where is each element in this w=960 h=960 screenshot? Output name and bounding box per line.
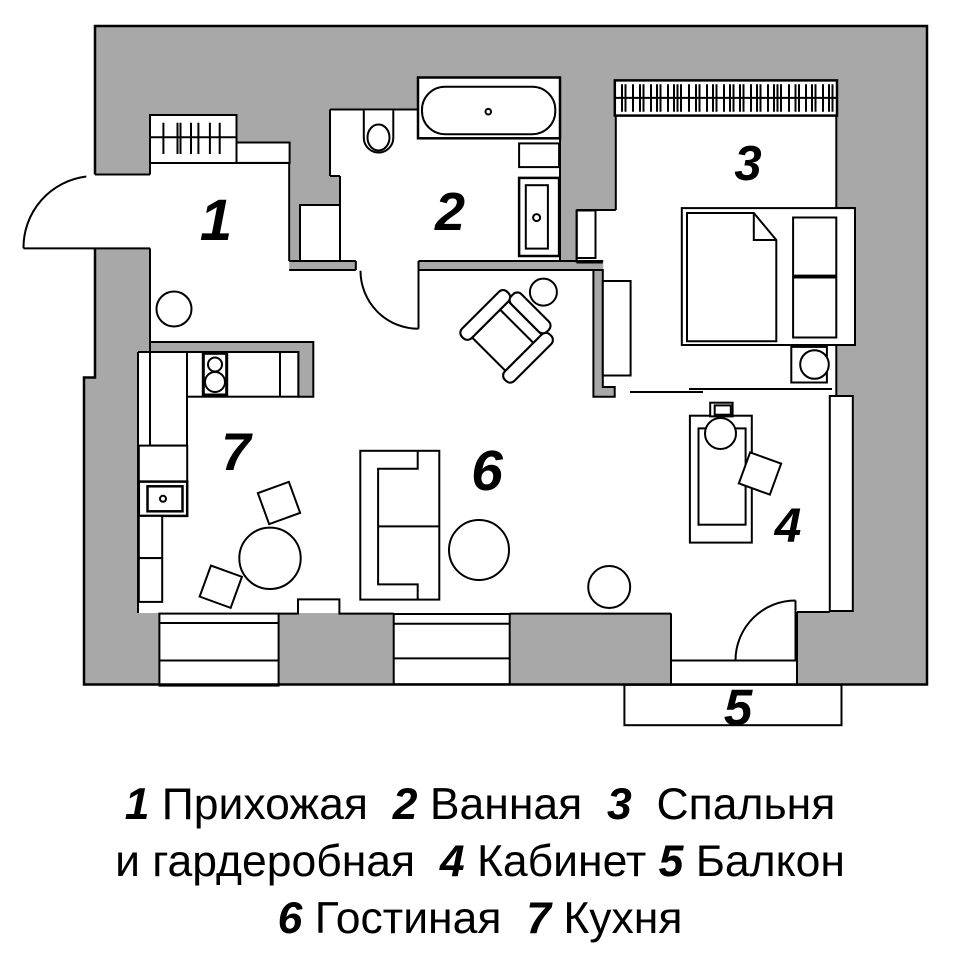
svg-text:5: 5 — [724, 679, 753, 736]
svg-text:1: 1 — [200, 188, 232, 253]
svg-text:6: 6 — [471, 439, 503, 503]
svg-text:4: 4 — [774, 500, 802, 553]
svg-text:2: 2 — [434, 182, 465, 242]
svg-text:7: 7 — [221, 423, 253, 482]
svg-text:3: 3 — [734, 137, 761, 191]
